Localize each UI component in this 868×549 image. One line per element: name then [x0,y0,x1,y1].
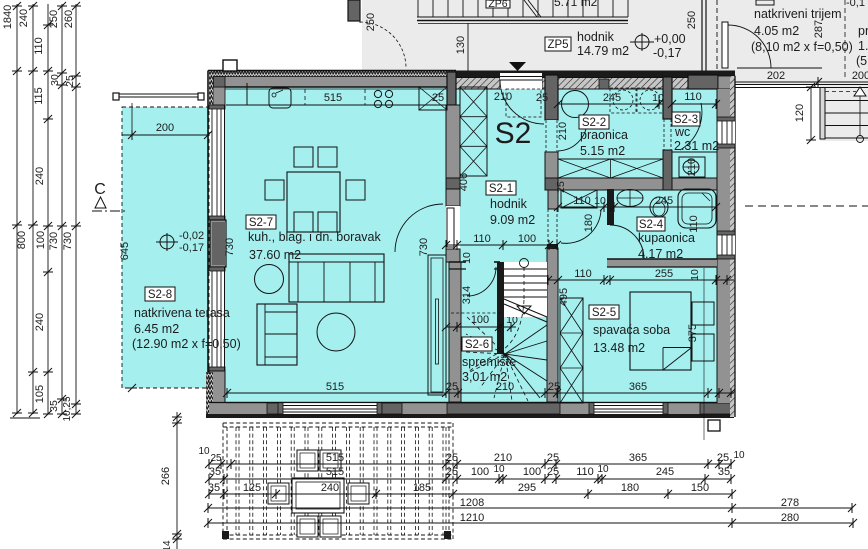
svg-text:100: 100 [518,233,536,245]
svg-text:110: 110 [574,268,592,280]
svg-text:35: 35 [48,400,60,412]
svg-text:365: 365 [629,452,647,464]
svg-text:365: 365 [629,381,647,393]
svg-text:730: 730 [224,238,236,256]
svg-text:-0,17: -0,17 [653,46,682,60]
svg-text:35: 35 [718,466,730,478]
svg-text:25: 25 [432,92,444,104]
svg-text:S2-6: S2-6 [465,339,489,351]
svg-text:(8,10 m2 x f=0,50): (8,10 m2 x f=0,50) [751,40,853,54]
svg-text:800: 800 [16,231,28,249]
svg-text:14: 14 [162,540,173,549]
svg-text:110: 110 [684,91,702,103]
svg-text:100: 100 [35,231,47,249]
svg-text:9.09 m2: 9.09 m2 [490,213,535,227]
svg-text:245: 245 [655,195,673,207]
svg-text:130: 130 [455,36,467,54]
svg-text:25: 25 [446,466,458,478]
svg-text:10: 10 [652,92,664,104]
svg-text:210: 210 [494,452,512,464]
svg-text:-0,02: -0,02 [179,230,204,242]
svg-text:10: 10 [689,269,701,281]
svg-text:210: 210 [557,122,569,140]
svg-text:180: 180 [583,214,595,232]
svg-text:-0,17: -0,17 [179,242,204,254]
svg-text:100: 100 [471,466,489,478]
svg-text:100: 100 [523,466,541,478]
svg-text:-0,1: -0,1 [846,0,865,9]
svg-text:25: 25 [64,75,76,87]
svg-text:250: 250 [686,11,698,29]
svg-text:495: 495 [558,288,570,306]
svg-text:730: 730 [48,232,60,250]
svg-text:260: 260 [63,10,75,28]
svg-text:210: 210 [496,381,514,393]
svg-text:4.05 m2: 4.05 m2 [754,24,799,38]
svg-text:35: 35 [208,482,220,494]
svg-text:+0,00: +0,00 [654,32,686,46]
svg-text:515: 515 [326,466,344,478]
svg-text:30: 30 [49,74,61,86]
svg-text:245: 245 [603,92,621,104]
svg-text:(5: (5 [856,54,867,68]
svg-text:natkriveni trijem: natkriveni trijem [754,7,842,21]
svg-text:1840: 1840 [2,5,14,29]
svg-text:2.31 m2: 2.31 m2 [674,139,719,153]
svg-text:spavaća soba: spavaća soba [593,323,670,337]
svg-text:25: 25 [536,92,548,104]
svg-text:natkrivena terasa: natkrivena terasa [134,306,230,320]
svg-text:4.17 m2: 4.17 m2 [638,247,683,261]
svg-text:150: 150 [691,482,709,494]
svg-text:250: 250 [48,10,60,28]
svg-text:105: 105 [34,385,46,403]
svg-text:515: 515 [326,381,344,393]
svg-text:praonica: praonica [580,128,628,142]
svg-text:(12.90 m2 x f=0,50): (12.90 m2 x f=0,50) [132,337,241,351]
svg-text:240: 240 [34,167,46,185]
svg-text:515: 515 [326,452,344,464]
svg-text:202: 202 [767,70,785,82]
svg-text:35: 35 [209,466,221,478]
svg-text:wc: wc [674,125,690,139]
svg-text:37.60 m2: 37.60 m2 [249,248,301,262]
svg-text:S2-1: S2-1 [489,183,513,195]
svg-text:266: 266 [160,467,172,485]
svg-text:110: 110 [576,466,594,478]
svg-text:spremište: spremište [462,355,516,369]
svg-text:115: 115 [33,87,45,105]
svg-text:185: 185 [413,482,431,494]
svg-text:180: 180 [621,482,639,494]
svg-text:10: 10 [597,464,609,475]
svg-text:125: 125 [243,482,261,494]
svg-text:110: 110 [33,37,45,55]
svg-text:200: 200 [852,70,868,82]
svg-text:hodnik: hodnik [577,30,615,44]
svg-text:kupaonica: kupaonica [638,231,695,245]
svg-text:ZP6: ZP6 [488,0,507,10]
svg-text:250: 250 [365,13,377,31]
svg-text:210: 210 [494,91,512,103]
svg-text:406: 406 [458,173,470,191]
svg-text:240: 240 [34,313,46,331]
svg-text:S2-7: S2-7 [249,217,273,229]
svg-text:730: 730 [62,232,74,250]
svg-text:hodnik: hodnik [490,197,528,211]
svg-text:S2-8: S2-8 [148,289,172,301]
svg-text:14.79 m2: 14.79 m2 [577,44,629,58]
svg-text:S2: S2 [495,117,532,150]
svg-text:515: 515 [324,92,342,104]
svg-text:287: 287 [813,20,825,38]
svg-text:280: 280 [781,512,799,524]
svg-text:pr: pr [858,24,868,38]
svg-text:10: 10 [461,252,473,264]
svg-text:C: C [94,181,106,198]
svg-text:255: 255 [655,268,673,280]
svg-text:278: 278 [781,497,799,509]
svg-text:10: 10 [733,450,745,461]
svg-text:730: 730 [418,238,430,256]
svg-text:1210: 1210 [460,512,484,524]
svg-text:S2-5: S2-5 [592,307,616,319]
svg-text:1208: 1208 [460,497,484,509]
svg-text:10: 10 [198,446,210,457]
svg-text:ZP5: ZP5 [547,39,568,51]
svg-text:10,25: 10,25 [62,396,73,421]
svg-text:S2-4: S2-4 [639,219,664,231]
svg-text:110: 110 [573,195,591,207]
svg-text:10: 10 [493,464,505,475]
svg-text:13.48 m2: 13.48 m2 [593,341,645,355]
svg-text:240: 240 [321,482,339,494]
svg-text:100: 100 [471,314,489,326]
svg-text:375: 375 [687,324,699,342]
svg-text:25: 25 [210,453,222,464]
svg-text:314: 314 [461,286,473,304]
svg-text:110: 110 [473,233,491,245]
svg-text:295: 295 [518,482,536,494]
svg-text:5.71 m2: 5.71 m2 [554,0,598,9]
svg-text:5.15 m2: 5.15 m2 [580,144,625,158]
svg-text:200: 200 [156,122,174,134]
svg-text:25: 25 [547,466,559,478]
svg-text:645: 645 [119,242,131,260]
svg-text:110: 110 [688,215,700,233]
svg-text:1.: 1. [858,39,868,53]
svg-text:240: 240 [18,9,30,27]
svg-text:120: 120 [794,104,806,122]
svg-text:210: 210 [686,158,698,176]
svg-text:245: 245 [656,466,674,478]
svg-text:6.45 m2: 6.45 m2 [134,322,179,336]
